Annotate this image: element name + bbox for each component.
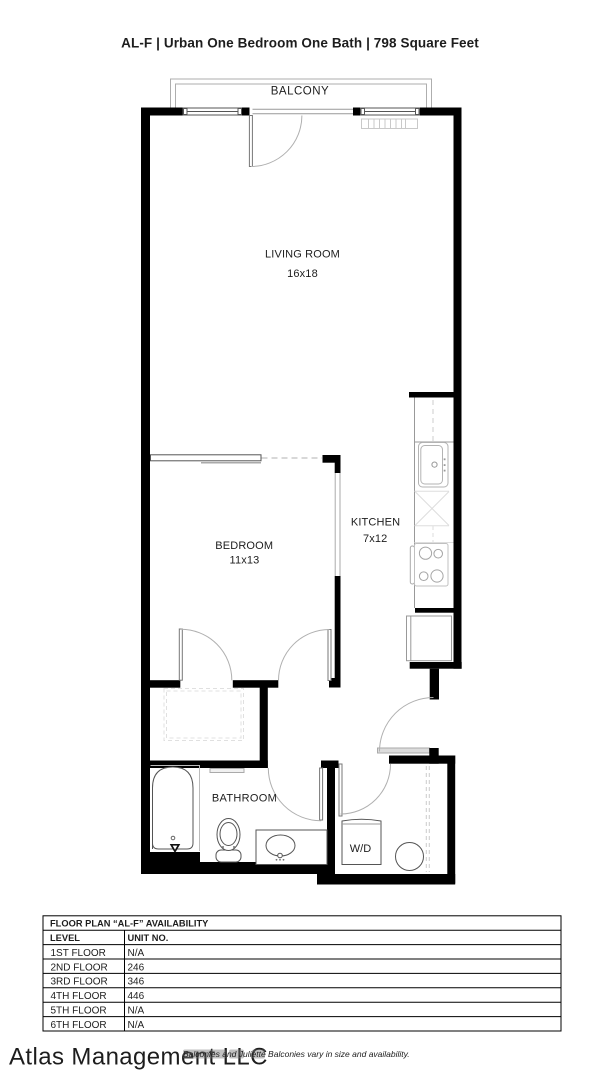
- svg-text:6TH FLOOR: 6TH FLOOR: [51, 1020, 107, 1031]
- svg-text:446: 446: [128, 991, 145, 1002]
- svg-text:BEDROOM: BEDROOM: [215, 540, 273, 552]
- svg-text:11x13: 11x13: [230, 555, 260, 567]
- svg-text:LIVING ROOM: LIVING ROOM: [265, 249, 340, 261]
- svg-text:AL-F | Urban One Bedroom One B: AL-F | Urban One Bedroom One Bath | 798 …: [121, 36, 479, 51]
- svg-text:16x18: 16x18: [287, 268, 318, 280]
- svg-text:UNIT NO.: UNIT NO.: [128, 933, 169, 943]
- svg-text:2ND FLOOR: 2ND FLOOR: [51, 962, 108, 973]
- svg-text:1ST FLOOR: 1ST FLOOR: [51, 948, 106, 959]
- svg-text:4TH FLOOR: 4TH FLOOR: [51, 991, 107, 1002]
- svg-text:W/D: W/D: [350, 843, 371, 855]
- svg-text:KITCHEN: KITCHEN: [351, 516, 400, 528]
- svg-text:3RD FLOOR: 3RD FLOOR: [51, 977, 108, 988]
- svg-text:N/A: N/A: [128, 1006, 145, 1017]
- svg-text:Balconies and Juliette Balconi: Balconies and Juliette Balconies vary in…: [183, 1049, 410, 1059]
- svg-text:BALCONY: BALCONY: [271, 86, 329, 98]
- svg-text:BATHROOM: BATHROOM: [212, 793, 277, 805]
- svg-text:FLOOR PLAN “AL-F” AVAILABILITY: FLOOR PLAN “AL-F” AVAILABILITY: [50, 919, 209, 929]
- svg-text:N/A: N/A: [128, 948, 145, 959]
- svg-text:246: 246: [128, 962, 145, 973]
- svg-text:346: 346: [128, 977, 145, 988]
- svg-text:LEVEL: LEVEL: [50, 933, 80, 943]
- svg-text:5TH FLOOR: 5TH FLOOR: [51, 1006, 107, 1017]
- svg-text:N/A: N/A: [128, 1020, 145, 1031]
- svg-text:7x12: 7x12: [363, 533, 387, 545]
